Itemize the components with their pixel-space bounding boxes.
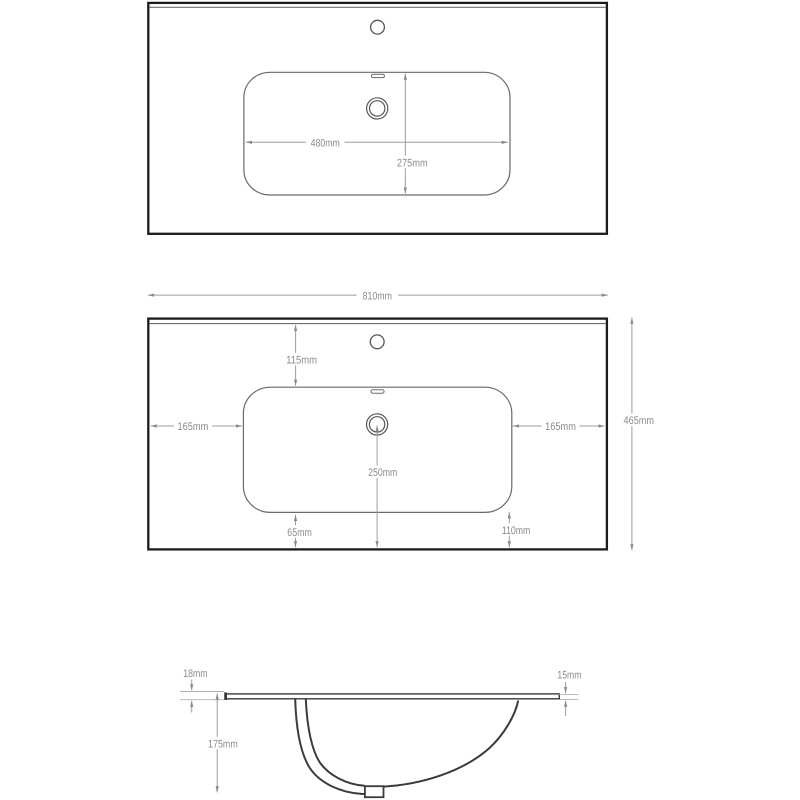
svg-text:110mm: 110mm [502, 525, 530, 537]
svg-text:810mm: 810mm [363, 290, 393, 302]
svg-text:250mm: 250mm [368, 467, 397, 479]
svg-text:18mm: 18mm [183, 668, 207, 680]
svg-text:115mm: 115mm [286, 354, 317, 366]
svg-text:480mm: 480mm [311, 137, 340, 149]
svg-text:15mm: 15mm [557, 670, 581, 682]
svg-text:275mm: 275mm [397, 157, 428, 169]
svg-text:65mm: 65mm [287, 527, 312, 539]
svg-text:165mm: 165mm [178, 421, 209, 433]
svg-text:465mm: 465mm [624, 415, 655, 427]
svg-text:175mm: 175mm [208, 739, 238, 751]
svg-text:165mm: 165mm [545, 421, 576, 433]
